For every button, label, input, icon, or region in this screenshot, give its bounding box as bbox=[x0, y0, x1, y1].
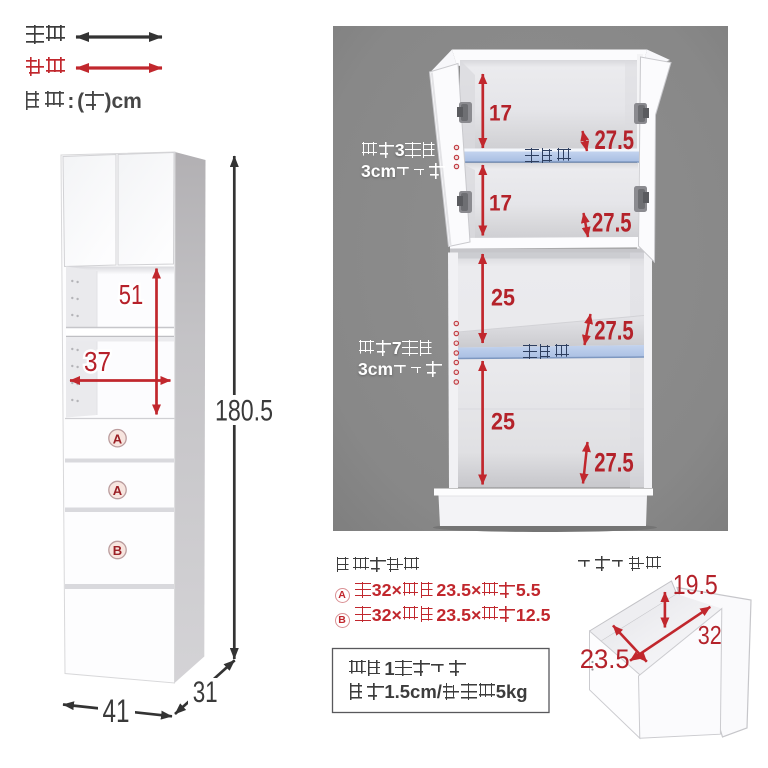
svg-text:27.5: 27.5 bbox=[592, 208, 632, 238]
svg-text:51: 51 bbox=[119, 279, 144, 310]
svg-text:A: A bbox=[113, 431, 123, 446]
svg-text:41: 41 bbox=[103, 693, 130, 729]
svg-text:32: 32 bbox=[698, 620, 722, 650]
svg-text:27.5: 27.5 bbox=[594, 448, 634, 478]
svg-text:27.5: 27.5 bbox=[595, 125, 635, 155]
svg-text:37: 37 bbox=[84, 346, 111, 377]
svg-text:17: 17 bbox=[489, 100, 512, 125]
svg-text:17: 17 bbox=[489, 191, 512, 216]
svg-text:23.5: 23.5 bbox=[580, 644, 630, 674]
svg-text:B: B bbox=[113, 543, 122, 558]
svg-text:A: A bbox=[113, 483, 123, 498]
svg-text:180.5: 180.5 bbox=[215, 394, 273, 427]
svg-text:19.5: 19.5 bbox=[673, 569, 718, 600]
svg-text:31: 31 bbox=[193, 676, 218, 709]
svg-text:25: 25 bbox=[491, 284, 515, 311]
svg-text:27.5: 27.5 bbox=[594, 315, 634, 345]
svg-text:25: 25 bbox=[491, 409, 515, 436]
